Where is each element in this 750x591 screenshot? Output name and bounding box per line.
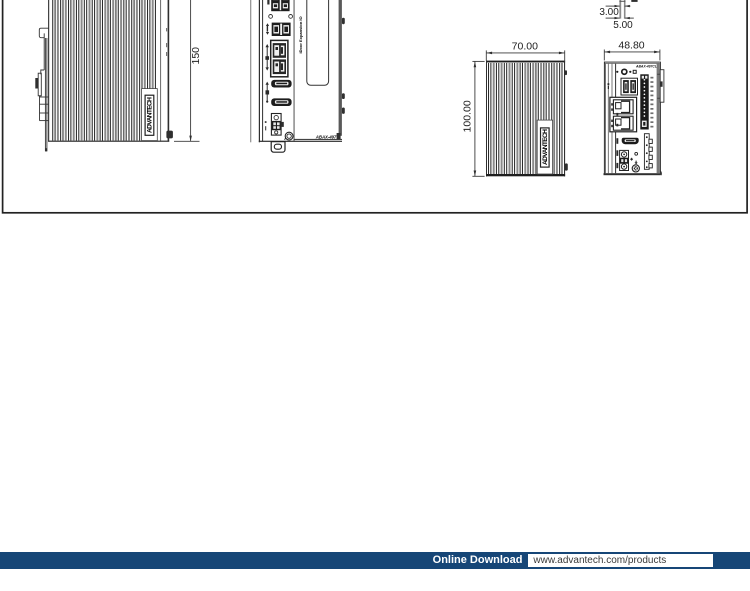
svg-text:100.00: 100.00 [461, 100, 473, 132]
svg-text:3.00: 3.00 [599, 7, 619, 18]
svg-text:48.80: 48.80 [618, 40, 644, 52]
svg-text:ADVANTECH: ADVANTECH [147, 97, 154, 133]
svg-text:5.00: 5.00 [613, 20, 633, 31]
svg-text:ADVANTECH: ADVANTECH [542, 129, 549, 165]
svg-text:iDoor Expansion IO: iDoor Expansion IO [298, 16, 303, 53]
svg-text:70.00: 70.00 [512, 41, 538, 53]
svg-text:ABAX-497: ABAX-497 [315, 134, 337, 139]
svg-text:ABAX-497CL: ABAX-497CL [635, 64, 657, 68]
svg-text:150: 150 [190, 47, 202, 65]
